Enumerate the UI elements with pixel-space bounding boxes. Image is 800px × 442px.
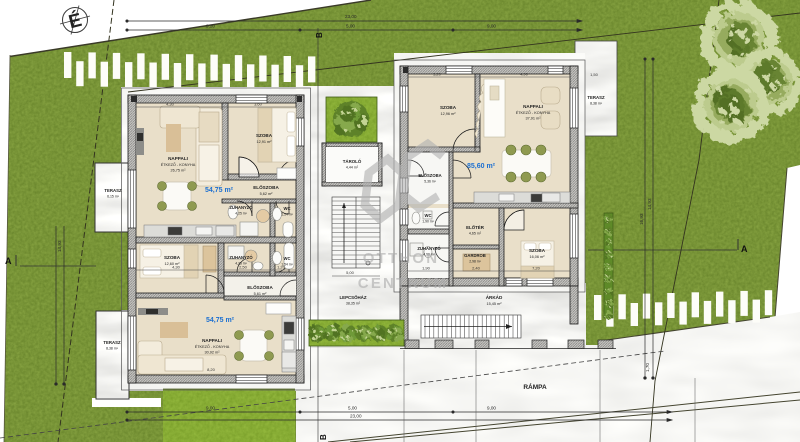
svg-text:LEPCSŐHÁZ: LEPCSŐHÁZ bbox=[339, 295, 366, 300]
svg-text:5,36 m²: 5,36 m² bbox=[424, 179, 436, 183]
svg-text:TERASZ: TERASZ bbox=[103, 340, 121, 345]
svg-text:ELŐSZOBA: ELŐSZOBA bbox=[253, 184, 279, 190]
svg-text:9,00: 9,00 bbox=[487, 24, 496, 29]
svg-text:12,96 m²: 12,96 m² bbox=[441, 112, 457, 116]
svg-text:1,70: 1,70 bbox=[645, 363, 650, 372]
svg-text:4,90: 4,90 bbox=[520, 72, 529, 77]
svg-text:26,75 m²: 26,75 m² bbox=[171, 169, 187, 173]
svg-text:4,30: 4,30 bbox=[166, 102, 175, 107]
svg-text:ÉTKEZŐ - KONYHA: ÉTKEZŐ - KONYHA bbox=[161, 162, 196, 167]
svg-text:8,38 m²: 8,38 m² bbox=[590, 102, 603, 106]
svg-text:9,00: 9,00 bbox=[206, 406, 215, 411]
svg-text:A: A bbox=[5, 256, 12, 266]
svg-text:TERASZ: TERASZ bbox=[104, 188, 122, 193]
svg-text:15,45 m²: 15,45 m² bbox=[487, 302, 503, 306]
svg-text:WC: WC bbox=[284, 206, 291, 211]
svg-text:SZOBA: SZOBA bbox=[440, 105, 457, 110]
svg-text:WC: WC bbox=[425, 213, 432, 218]
svg-text:5,61 m²: 5,61 m² bbox=[254, 292, 268, 296]
svg-text:8,38 m²: 8,38 m² bbox=[106, 347, 119, 351]
svg-text:TÁROLÓ: TÁROLÓ bbox=[343, 159, 362, 164]
svg-text:2,40: 2,40 bbox=[472, 266, 481, 271]
svg-text:23,00: 23,00 bbox=[350, 414, 362, 419]
svg-text:ELŐSZOBA: ELŐSZOBA bbox=[418, 173, 441, 178]
svg-text:SZOBA: SZOBA bbox=[256, 133, 273, 138]
svg-text:4,30: 4,30 bbox=[172, 265, 181, 270]
svg-text:16,06 m²: 16,06 m² bbox=[530, 255, 546, 259]
svg-text:3,20: 3,20 bbox=[433, 72, 442, 77]
svg-text:38,35 m²: 38,35 m² bbox=[346, 302, 361, 306]
svg-text:ELŐSZOBA: ELŐSZOBA bbox=[247, 284, 273, 290]
svg-text:54,75 m²: 54,75 m² bbox=[206, 317, 235, 324]
svg-text:6,15 m²: 6,15 m² bbox=[107, 195, 120, 199]
svg-text:ÉTKEZŐ - KONYHA: ÉTKEZŐ - KONYHA bbox=[516, 110, 551, 115]
svg-text:7,20: 7,20 bbox=[532, 266, 541, 271]
svg-text:A: A bbox=[741, 244, 748, 254]
svg-text:1,50: 1,50 bbox=[590, 72, 599, 77]
svg-text:CENTRUM: CENTRUM bbox=[358, 275, 448, 292]
svg-text:4,44 m²: 4,44 m² bbox=[346, 166, 359, 170]
svg-text:14,93: 14,93 bbox=[647, 198, 652, 210]
svg-text:WC: WC bbox=[284, 256, 291, 261]
svg-text:2,50: 2,50 bbox=[239, 265, 248, 270]
svg-text:12,91 m²: 12,91 m² bbox=[257, 140, 273, 144]
svg-text:NAPPALI: NAPPALI bbox=[168, 156, 188, 161]
svg-text:ÉTKEZŐ - KONYHA: ÉTKEZŐ - KONYHA bbox=[195, 344, 230, 349]
svg-text:RÁMPA: RÁMPA bbox=[523, 382, 547, 391]
svg-text:54,75 m²: 54,75 m² bbox=[205, 187, 234, 194]
svg-text:14,93: 14,93 bbox=[57, 240, 62, 252]
svg-text:GARDROB: GARDROB bbox=[464, 253, 486, 258]
svg-text:ELŐTÉR: ELŐTÉR bbox=[466, 225, 485, 230]
svg-text:ZUHANYZÓ: ZUHANYZÓ bbox=[229, 255, 253, 260]
svg-text:TERASZ: TERASZ bbox=[587, 95, 605, 100]
svg-text:4,65 m²: 4,65 m² bbox=[469, 232, 482, 236]
svg-text:ÁRKÁD: ÁRKÁD bbox=[486, 294, 503, 300]
svg-text:5,62 m²: 5,62 m² bbox=[260, 192, 274, 196]
svg-text:8,20: 8,20 bbox=[207, 367, 216, 372]
svg-text:2,98 m²: 2,98 m² bbox=[469, 259, 481, 263]
svg-text:37,91 m²: 37,91 m² bbox=[526, 117, 542, 121]
svg-text:SZOBA: SZOBA bbox=[164, 255, 181, 260]
svg-text:23,00: 23,00 bbox=[345, 14, 357, 19]
svg-text:85,60 m²: 85,60 m² bbox=[467, 163, 496, 170]
svg-text:ZUHANYZÓ: ZUHANYZÓ bbox=[229, 205, 253, 210]
svg-text:B: B bbox=[319, 434, 328, 440]
svg-text:16,93: 16,93 bbox=[639, 213, 644, 225]
svg-text:NAPPALI: NAPPALI bbox=[523, 104, 543, 109]
svg-text:5,00: 5,00 bbox=[346, 24, 355, 29]
svg-text:4,25 m²: 4,25 m² bbox=[235, 211, 247, 215]
svg-text:1,20: 1,20 bbox=[277, 265, 286, 270]
svg-text:5,00: 5,00 bbox=[348, 406, 357, 411]
svg-text:9,00: 9,00 bbox=[487, 406, 496, 411]
svg-text:9,20: 9,20 bbox=[206, 24, 215, 29]
svg-text:30,92 m²: 30,92 m² bbox=[205, 351, 221, 355]
svg-text:3,60: 3,60 bbox=[254, 102, 263, 107]
svg-text:5,00: 5,00 bbox=[346, 270, 355, 275]
svg-text:B: B bbox=[315, 32, 324, 38]
svg-text:1,54 m²: 1,54 m² bbox=[281, 212, 293, 216]
svg-text:OTTHON: OTTHON bbox=[363, 250, 440, 267]
svg-text:SZOBA: SZOBA bbox=[529, 248, 546, 253]
svg-text:1,90 m²: 1,90 m² bbox=[422, 219, 434, 223]
svg-text:NAPPALI: NAPPALI bbox=[202, 338, 222, 343]
